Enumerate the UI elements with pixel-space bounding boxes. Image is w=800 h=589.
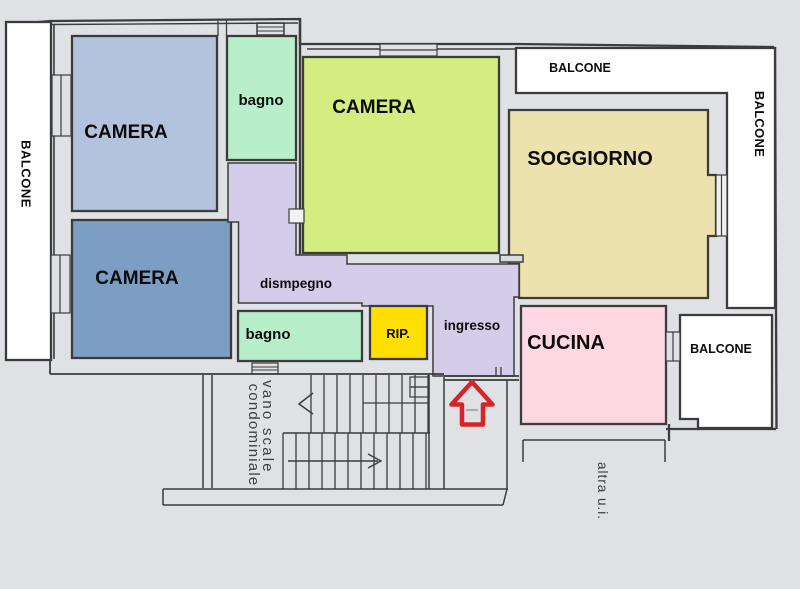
svg-text:ingresso: ingresso [444,318,500,333]
svg-text:BALCONE: BALCONE [690,342,752,356]
svg-text:bagno: bagno [246,326,291,343]
svg-text:condominiale: condominiale [245,384,262,487]
svg-text:dismpegno: dismpegno [260,276,332,291]
svg-text:RIP.: RIP. [386,326,410,341]
svg-text:SOGGIORNO: SOGGIORNO [527,148,653,170]
svg-text:bagno: bagno [239,92,284,109]
svg-text:BALCONE: BALCONE [549,61,611,75]
svg-text:altra u.i.: altra u.i. [595,462,610,520]
svg-text:CUCINA: CUCINA [527,332,605,354]
svg-text:CAMERA: CAMERA [95,268,179,289]
svg-text:BALCONE: BALCONE [19,140,34,208]
svg-text:CAMERA: CAMERA [332,97,416,118]
svg-text:CAMERA: CAMERA [84,122,168,143]
svg-text:BALCONE: BALCONE [752,91,767,157]
